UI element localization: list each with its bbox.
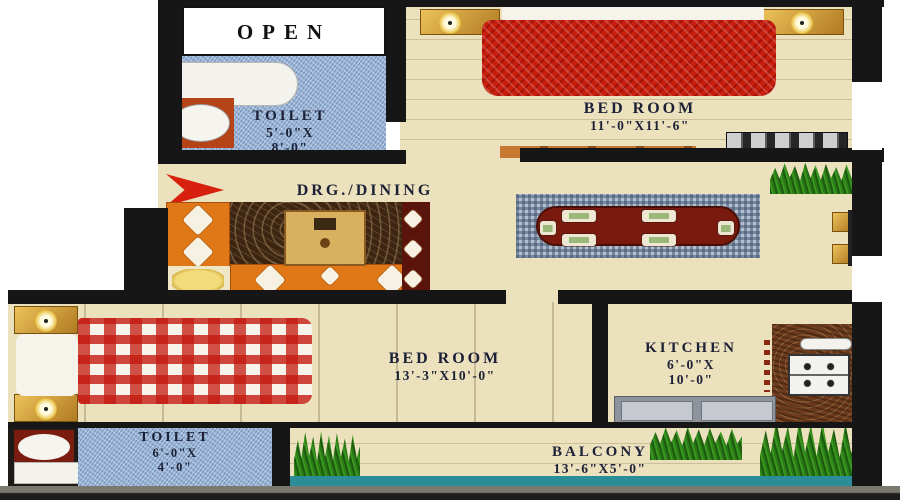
room-dims-2: 10'-0" — [616, 372, 766, 387]
stove-icon — [788, 354, 850, 396]
sofa-cushion — [182, 236, 213, 267]
kitchen-cabinets — [614, 396, 776, 424]
bottom-border — [0, 486, 900, 500]
lamp-icon — [439, 12, 461, 34]
room-dims-1: 6'-0"X — [616, 357, 766, 372]
lamp-icon — [35, 310, 57, 332]
sofa-cushion — [403, 269, 423, 289]
bed-pillow — [16, 334, 78, 396]
cabinet-door — [701, 401, 773, 421]
room-dims: 13'-3"X10'-0" — [330, 368, 560, 383]
room-dims-1: 5'-0"X — [210, 125, 370, 140]
bed-double-gingham — [78, 318, 312, 404]
table-item — [320, 238, 330, 248]
room-name: KITCHEN — [616, 340, 766, 357]
window-right-top — [852, 82, 882, 150]
open-label: OPEN — [184, 20, 384, 45]
wall-bedroom-top-bottom — [520, 148, 884, 162]
wall-open-left — [158, 0, 182, 150]
wall-top — [158, 0, 884, 7]
wall-balcony-top — [8, 422, 852, 428]
cabinet-door — [621, 401, 693, 421]
room-dims: 13'-6"X5'-0" — [480, 461, 720, 476]
room-dims-1: 6'-0"X — [100, 446, 250, 460]
table-item — [314, 218, 336, 230]
wall-toilet-bottom-right — [272, 428, 290, 486]
bedroom-top-label: BED ROOM 11'-0"X11'-6" — [520, 100, 760, 133]
nightstand — [14, 306, 78, 334]
toilet-bottom-label: TOILET 6'-0"X 4'-0" — [100, 430, 250, 474]
lamp-icon — [35, 398, 57, 420]
sofa-right — [402, 202, 430, 294]
floor-plan: OPEN TOILET 5'-0"X 8'-0" BED ROOM 11'-0"… — [0, 0, 900, 500]
coffee-table — [284, 210, 366, 266]
wall-mid-left — [8, 290, 506, 304]
bed-double — [482, 20, 776, 96]
sofa-cushion — [403, 239, 423, 259]
sink-icon — [800, 338, 852, 350]
room-dims: 11'-0"X11'-6" — [520, 118, 760, 133]
wall-kitchen-left — [592, 304, 608, 424]
shutter-marks — [764, 340, 770, 392]
kitchen-label: KITCHEN 6'-0"X 10'-0" — [616, 340, 766, 387]
wall-right — [852, 0, 882, 486]
sofa-cushion — [182, 204, 213, 235]
placemat — [718, 221, 734, 235]
room-name: BED ROOM — [520, 100, 760, 118]
room-name: BED ROOM — [330, 350, 560, 368]
nightstand — [14, 394, 78, 422]
toilet-top-label: TOILET 5'-0"X 8'-0" — [210, 108, 370, 155]
room-name: TOILET — [210, 108, 370, 125]
placemat — [562, 234, 596, 246]
bedroom-bottom-label: BED ROOM 13'-3"X10'-0" — [330, 350, 560, 383]
room-name: TOILET — [100, 430, 250, 446]
open-area: OPEN — [182, 6, 386, 56]
sofa-cushion — [403, 209, 423, 229]
room-name: DRG./DINING — [240, 182, 490, 200]
placemat — [562, 210, 596, 222]
sofa-left — [166, 202, 230, 268]
lamp-icon — [791, 12, 813, 34]
wall-toilet-top-bottom — [158, 150, 406, 164]
wall-mid-right — [558, 290, 852, 304]
room-dims-2: 4'-0" — [100, 460, 250, 474]
toilet-seat-icon — [18, 434, 70, 460]
margin-left — [0, 0, 8, 486]
placemat — [642, 234, 676, 246]
margin-right — [884, 0, 900, 486]
sofa-cushion — [320, 266, 340, 286]
placemat — [642, 210, 676, 222]
placemat — [540, 221, 556, 235]
window-right-mid — [852, 256, 882, 302]
wall-toilet-top-right — [386, 0, 406, 122]
